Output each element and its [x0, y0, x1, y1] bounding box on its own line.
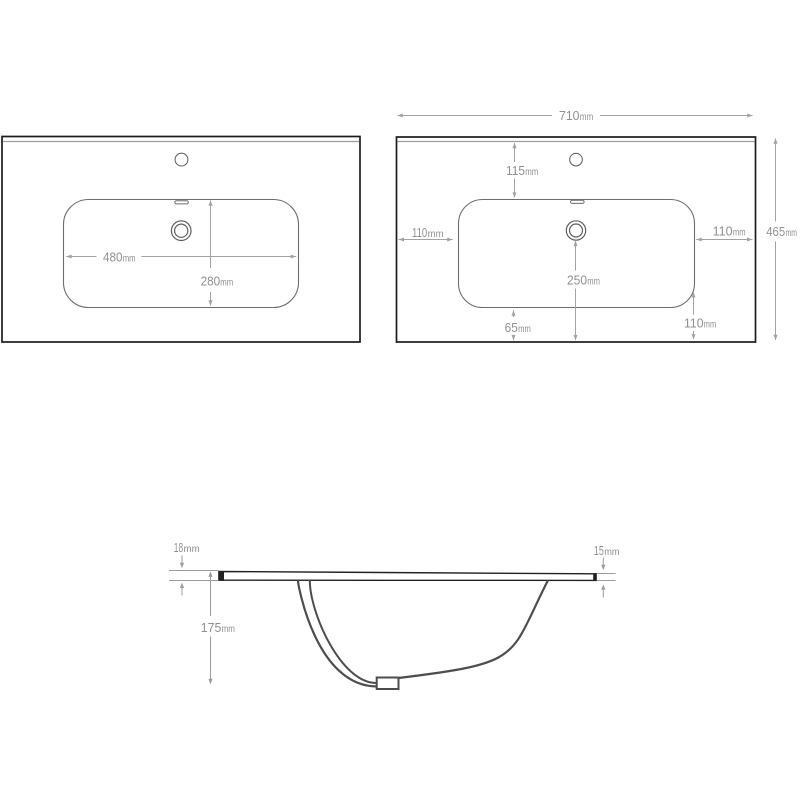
- svg-text:465: 465: [766, 225, 785, 239]
- svg-text:mm: mm: [580, 111, 594, 123]
- svg-text:65: 65: [505, 321, 518, 335]
- svg-text:110: 110: [713, 225, 733, 239]
- svg-text:mm: mm: [220, 276, 233, 288]
- svg-text:mm: mm: [525, 166, 538, 178]
- svg-text:18: 18: [174, 541, 183, 555]
- svg-text:mm: mm: [786, 227, 798, 239]
- svg-text:115: 115: [506, 164, 525, 178]
- svg-text:250: 250: [567, 274, 587, 288]
- svg-text:mm: mm: [704, 318, 716, 330]
- svg-text:mm: mm: [222, 623, 235, 635]
- svg-text:710: 710: [559, 109, 580, 123]
- svg-text:mm: mm: [604, 546, 620, 558]
- svg-text:110: 110: [412, 226, 427, 240]
- svg-text:15: 15: [594, 544, 604, 558]
- svg-text:480: 480: [103, 250, 123, 264]
- svg-text:mm: mm: [587, 276, 600, 288]
- svg-text:175: 175: [201, 621, 222, 635]
- svg-text:mm: mm: [123, 252, 136, 264]
- svg-text:mm: mm: [428, 228, 444, 240]
- svg-text:mm: mm: [518, 323, 531, 335]
- svg-text:mm: mm: [733, 227, 746, 239]
- svg-text:mm: mm: [184, 543, 200, 555]
- svg-text:280: 280: [201, 274, 221, 288]
- svg-text:110: 110: [684, 316, 704, 330]
